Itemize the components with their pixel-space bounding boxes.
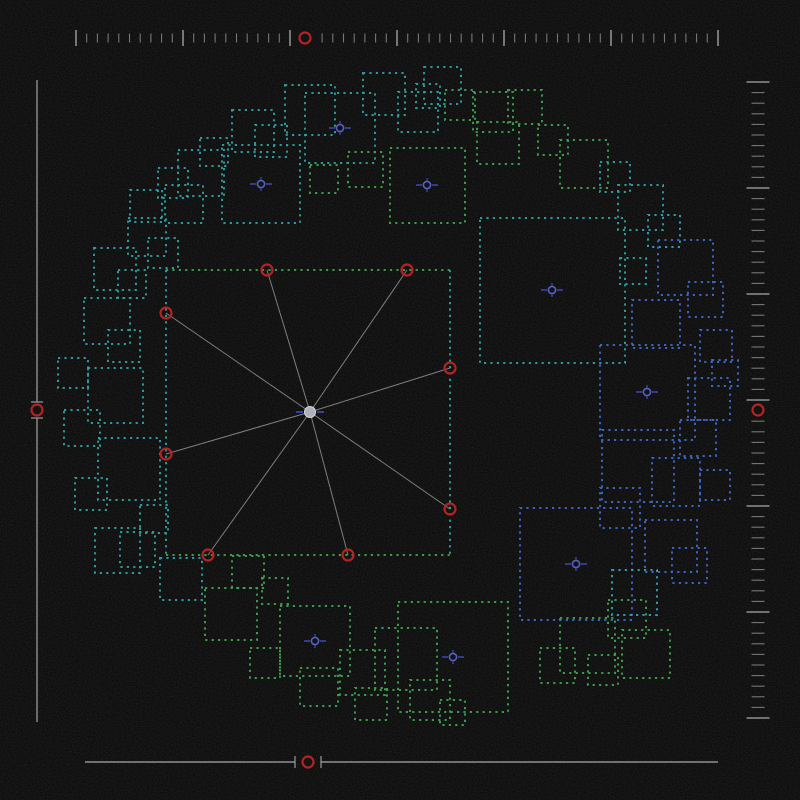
marker-ring-icon: [449, 653, 456, 660]
marker-ring-icon: [311, 637, 318, 644]
marker-ring-icon: [548, 286, 555, 293]
marker-ring-icon: [336, 124, 343, 131]
marker-ring-icon: [643, 388, 650, 395]
marker-ring-icon: [572, 560, 579, 567]
film-grain-overlay: [0, 0, 800, 800]
selection-center-handle[interactable]: [305, 407, 316, 418]
marker-ring-icon: [257, 180, 264, 187]
generative-canvas-stage: [0, 0, 800, 800]
marker-ring-icon: [423, 181, 430, 188]
scene-canvas[interactable]: [0, 0, 800, 800]
